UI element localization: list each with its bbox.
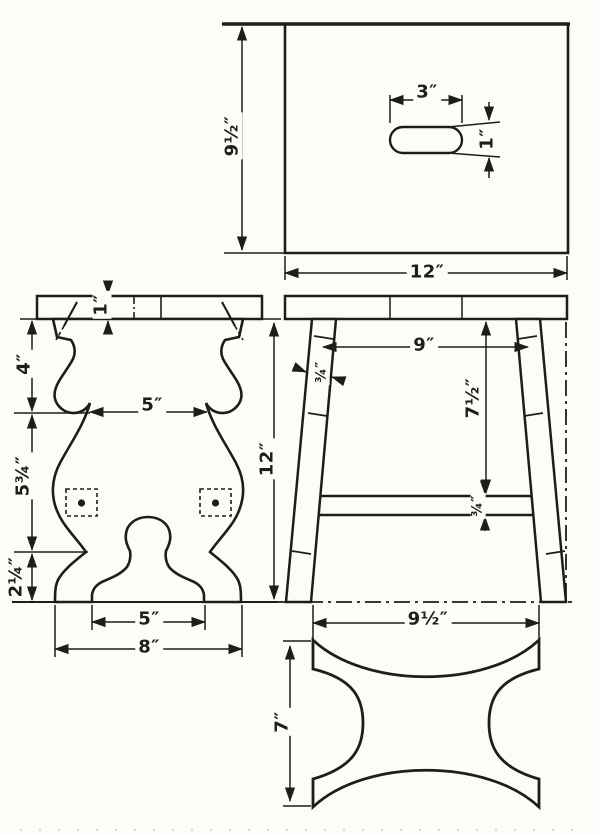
dim-stretcher-thickness: ¾″ bbox=[471, 493, 486, 519]
dim-base-width: 8″ bbox=[135, 639, 163, 658]
dim-upper-section: 4″ bbox=[16, 350, 35, 378]
dim-overall-height: 12″ bbox=[259, 439, 278, 480]
dim-foot-arch-width: 5″ bbox=[135, 611, 163, 630]
leg-profile bbox=[53, 319, 243, 602]
dim-middle-section: 5¾″ bbox=[15, 453, 34, 500]
plan-sheet: 3″ 1″ 9½″ 12″ 9″ ¾″ 7½″ ¾″ 9½″ 1″ 4″ 5¾″… bbox=[0, 0, 600, 834]
stretcher-face-linework bbox=[313, 640, 539, 807]
screw-left bbox=[78, 499, 85, 506]
top-view-linework bbox=[222, 24, 570, 253]
end-view-linework bbox=[37, 296, 262, 602]
dim-leg-thickness: ¾″ bbox=[315, 359, 330, 385]
dim-seat-thickness: 1″ bbox=[93, 291, 112, 319]
stool-plan-linework bbox=[0, 0, 600, 834]
right-leg bbox=[516, 319, 566, 602]
screw-right bbox=[212, 499, 219, 506]
seat-side bbox=[285, 296, 567, 319]
dim-slot-width: 1″ bbox=[479, 125, 498, 153]
hand-slot bbox=[390, 127, 462, 153]
dim-slot-length: 3″ bbox=[413, 84, 441, 103]
dim-seat-to-stretcher: 7½″ bbox=[465, 375, 484, 422]
dim-waist-width: 5″ bbox=[138, 397, 166, 416]
dim-seat-depth: 9½″ bbox=[224, 113, 243, 160]
dim-seat-length: 12″ bbox=[407, 264, 448, 283]
dim-leg-span-top: 9″ bbox=[410, 337, 438, 356]
dim-stretcher-height: 7″ bbox=[274, 708, 293, 736]
dim-leg-span-bottom: 9½″ bbox=[405, 611, 452, 630]
stretcher-side bbox=[318, 496, 534, 515]
dim-lower-section: 2¼″ bbox=[8, 554, 27, 601]
